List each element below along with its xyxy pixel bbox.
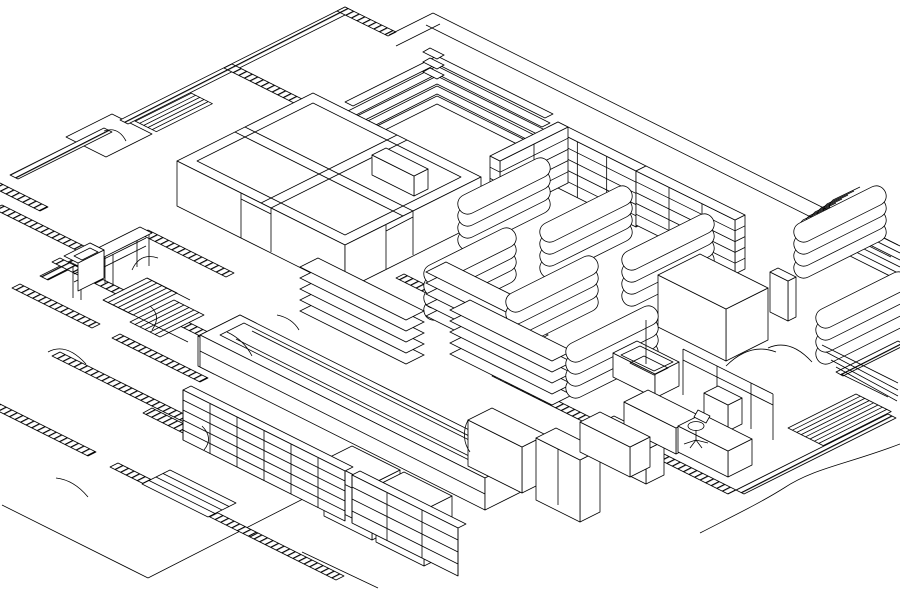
hatched-wall-stub-left (0, 183, 48, 211)
hatched-wall-stair-l2 (112, 334, 208, 382)
hatched-wall-bench (140, 230, 234, 277)
hatched-wall-bottom-corner (250, 533, 344, 580)
office-chair-seat (688, 422, 704, 431)
drawing-layers (0, 7, 900, 588)
exterior-steps-bottom-left (142, 470, 236, 517)
walkin-cooler-box (658, 254, 768, 361)
isometric-floor-plan-drawing (0, 0, 900, 589)
axonometric-supermarket-plan (0, 0, 900, 589)
hatched-wall-top-left-b (10, 128, 112, 179)
wall-stub-box (770, 268, 796, 321)
hatched-wall-bl-l1 (0, 404, 96, 456)
hatched-wall-room-a (0, 205, 92, 254)
hatched-wall-top-v (337, 7, 396, 36)
hatched-wall-stair-l1 (12, 284, 100, 328)
hatched-wall-branch (224, 64, 304, 104)
